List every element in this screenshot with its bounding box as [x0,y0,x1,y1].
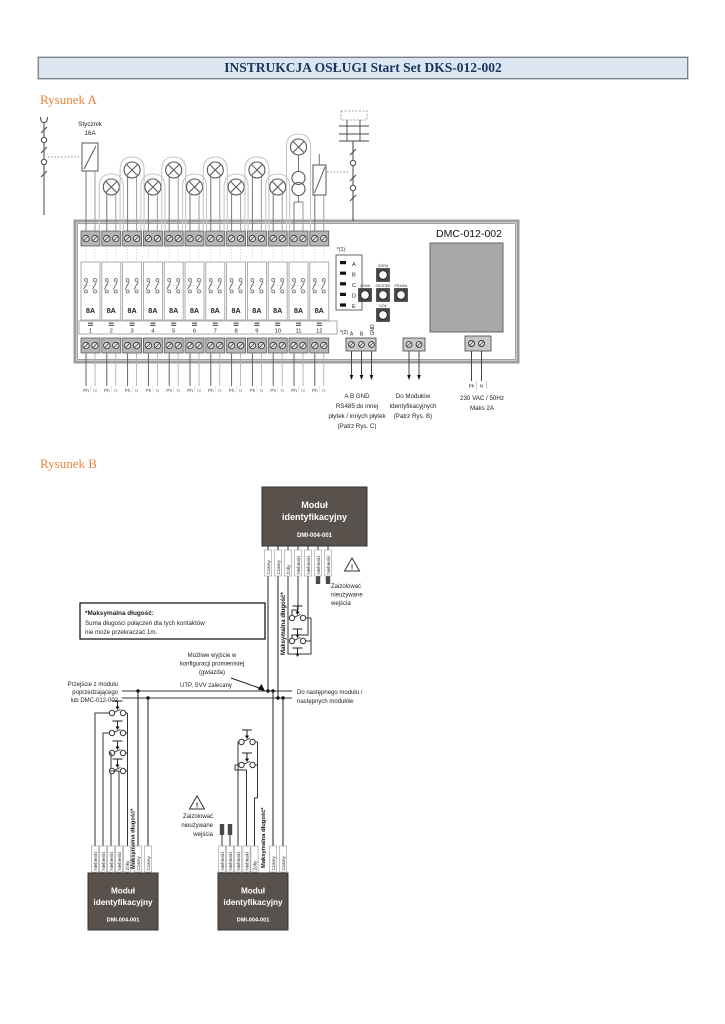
incoming-breaker-right [339,111,369,221]
svg-text:DÓŁ: DÓŁ [379,303,386,308]
svg-text:nie może przekraczać 1m.: nie może przekraczać 1m. [85,629,157,636]
svg-text:Niebieski: Niebieski [228,852,233,870]
warning-unused-top: !Zaizolowaćnieużywanewejścia [330,558,363,607]
svg-text:Ph: Ph [229,388,235,394]
svg-text:Niebieski: Niebieski [101,852,106,870]
svg-text:N: N [176,388,180,394]
svg-text:8A: 8A [190,306,199,315]
svg-text:Ph: Ph [312,388,318,394]
top-module-wiring: CzarnyCzarnyŻółtyNiebieskiNiebieskiNiebi… [264,546,331,698]
svg-text:5: 5 [172,328,175,334]
figure-b-caption: Rysunek B [40,456,97,472]
svg-text:Stycznik: Stycznik [78,121,103,128]
channel-number-strip: 123456789101112*(2) [79,321,348,336]
svg-text:Maksymalna długość*: Maksymalna długość* [261,807,267,868]
svg-text:E: E [352,304,356,310]
svg-text:poprzedzającego: poprzedzającego [72,690,118,696]
svg-text:Żółty: Żółty [285,564,291,575]
svg-text:wejścia: wejścia [330,601,351,607]
svg-text:DMI-004-001: DMI-004-001 [237,917,270,923]
middle-module-wiring: NiebieskiNiebieskiNiebieskiNiebieskiŻółt… [218,691,286,873]
contactor-16a: Stycznik16A [48,121,103,231]
svg-text:D: D [352,294,356,300]
svg-text:N: N [301,388,305,394]
incoming-breaker-left [41,117,48,215]
svg-text:Ph: Ph [166,388,172,394]
svg-text:Czarny: Czarny [281,855,286,870]
svg-text:2: 2 [110,328,113,334]
svg-text:Moduł: Moduł [301,500,328,510]
svg-text:Suma długości połączeń dla tyc: Suma długości połączeń dla tych kontaktó… [85,620,205,627]
svg-text:PRAWA: PRAWA [395,284,409,288]
svg-text:8A: 8A [273,306,282,315]
svg-text:Czarny: Czarny [276,559,281,574]
svg-text:Niebieski: Niebieski [93,852,98,870]
svg-text:*(1): *(1) [337,247,345,253]
svg-text:Identyfikacyjnych: Identyfikacyjnych [389,403,437,410]
svg-text:3: 3 [130,328,133,334]
svg-text:Czarny: Czarny [136,855,141,870]
svg-text:RS485 do innej: RS485 do innej [336,403,378,410]
figure-a-diagram: DMC-012-0028A8A8A8A8A8A8A8A8A8A8A8A12345… [35,110,565,450]
svg-text:Niebieski: Niebieski [326,556,331,574]
svg-text:N: N [260,388,264,394]
svg-text:N: N [156,388,160,394]
svg-text:wejścia: wejścia [192,832,213,838]
svg-text:Ph: Ph [104,388,110,394]
svg-text:10: 10 [274,328,280,334]
svg-text:GÓRA: GÓRA [378,263,389,268]
svg-text:ŚRODEK: ŚRODEK [375,283,391,288]
svg-text:8A: 8A [107,306,116,315]
svg-text:Ph: Ph [83,388,89,394]
svg-text:Maksymalna długość*: Maksymalna długość* [131,808,137,869]
svg-text:Ph: Ph [270,388,276,394]
nav-button-left: LEWA [359,284,372,302]
svg-text:nieużywane: nieużywane [331,593,363,599]
figure-b-diagram: CzarnyCzarnyŻółtyNiebieskiNiebieskiNiebi… [55,478,450,948]
svg-text:11: 11 [295,328,301,334]
svg-text:6: 6 [193,328,196,334]
svg-text:LEWA: LEWA [360,284,371,288]
device-label: DMC-012-002 [436,228,502,240]
svg-text:Ph: Ph [125,388,131,394]
svg-text:Ph: Ph [187,388,193,394]
svg-text:8A: 8A [86,306,95,315]
led-indicator-panel: ABCDE*(1) [336,247,362,310]
svg-text:C: C [352,283,356,289]
svg-text:identyfikacyjny: identyfikacyjny [93,898,153,907]
svg-text:Ph: Ph [145,388,151,394]
identification-module: ModułidentyfikacyjnyDMI-004-001 [88,873,158,930]
supply-circuit: Stycznik16A [41,111,370,231]
svg-text:N: N [480,384,484,390]
svg-text:DMI-004-001: DMI-004-001 [297,533,333,539]
svg-text:Niebieski: Niebieski [236,852,241,870]
svg-text:8A: 8A [231,306,240,315]
svg-text:Do następnego modułu /: Do następnego modułu / [297,690,363,696]
svg-text:następnych modułów: następnych modułów [297,699,354,705]
bus-lines: Przejście z modułupoprzedzającegolub DMC… [68,682,363,705]
svg-text:Niebieski: Niebieski [220,852,225,870]
svg-text:Moduł: Moduł [111,887,136,896]
identification-module: ModułidentyfikacyjnyDMI-004-001 [262,487,367,546]
svg-text:Moduł: Moduł [241,887,266,896]
svg-text:A: A [352,262,356,268]
svg-text:nieużywane: nieużywane [181,823,213,829]
figure-a-caption: Rysunek A [40,92,97,108]
svg-text:Czarny: Czarny [146,855,151,870]
svg-text:8A: 8A [169,306,178,315]
svg-text:1: 1 [89,328,92,334]
svg-text:Przejście z modułu: Przejście z modułu [68,682,118,688]
svg-text:*(2): *(2) [340,330,348,336]
svg-text:Maks 2A: Maks 2A [470,405,495,412]
svg-text:N: N [239,388,243,394]
warning-unused-mid: !Zaizolowaćnieużywanewejścia [181,796,213,838]
svg-text:12: 12 [316,328,322,334]
svg-text:Niebieski: Niebieski [316,556,321,574]
svg-text:Niebieski: Niebieski [109,852,114,870]
document-title: INSTRUKCJA OSŁUGI Start Set DKS-012-002 [224,60,502,75]
svg-text:UTP, SVV zalecany: UTP, SVV zalecany [180,683,232,689]
svg-text:Czarny: Czarny [266,559,271,574]
title-bar: INSTRUKCJA OSŁUGI Start Set DKS-012-002 [38,57,688,79]
svg-text:8A: 8A [148,306,157,315]
svg-text:Maksymalna długość*: Maksymalna długość* [281,592,287,655]
svg-text:Ph: Ph [208,388,214,394]
svg-text:B: B [352,272,356,278]
nav-button-center: ŚRODEK [375,283,391,302]
bottom-annotations: A B GNDRS485 do innejpłytek / innych pły… [328,381,504,430]
component-block [430,243,503,332]
svg-text:8A: 8A [294,306,303,315]
svg-text:(Patrz Rys. C): (Patrz Rys. C) [338,423,377,430]
svg-text:Ph: Ph [291,388,297,394]
svg-text:8A: 8A [211,306,220,315]
svg-text:lub DMC-012-002: lub DMC-012-002 [71,698,119,704]
left-module-wiring: NiebieskiNiebieskiNiebieskiNiebieskiŻółt… [91,691,151,873]
svg-text:9: 9 [255,328,258,334]
svg-text:(gwiazda): (gwiazda) [199,670,225,676]
svg-text:8A: 8A [127,306,136,315]
svg-text:Możliwe wyjście w: Możliwe wyjście w [188,653,237,659]
svg-text:Czarny: Czarny [271,855,276,870]
svg-text:(Patrz Rys. B): (Patrz Rys. B) [394,413,433,420]
manual-page: INSTRUKCJA OSŁUGI Start Set DKS-012-002 … [0,0,725,1024]
svg-text:identyfikacyjny: identyfikacyjny [223,898,283,907]
svg-text:Żółty: Żółty [252,860,258,871]
svg-text:Niebieski: Niebieski [245,852,250,870]
svg-text:N: N [280,388,284,394]
svg-text:A B GND: A B GND [344,393,370,400]
max-length-note: *Maksymalna długość:Suma długości połącz… [80,603,265,639]
svg-text:Niebieski: Niebieski [296,556,301,574]
svg-text:Ph: Ph [469,384,475,390]
svg-text:N: N [197,388,201,394]
svg-text:Zaizolować: Zaizolować [183,814,213,820]
svg-text:Ph: Ph [249,388,255,394]
svg-text:230 VAC / 50Hz: 230 VAC / 50Hz [460,395,504,402]
svg-text:N: N [93,388,97,394]
identification-module: ModułidentyfikacyjnyDMI-004-001 [218,873,288,930]
svg-text:N: N [322,388,326,394]
svg-text:*Maksymalna długość:: *Maksymalna długość: [85,610,154,617]
svg-text:7: 7 [214,328,217,334]
nav-button-up: GÓRA [377,263,390,282]
svg-text:GND: GND [370,324,376,336]
svg-text:identyfikacyjny: identyfikacyjny [282,512,347,522]
svg-text:!: ! [351,565,353,572]
svg-text:Niebieski: Niebieski [306,556,311,574]
svg-text:N: N [218,388,222,394]
svg-text:konfiguracji promienistej: konfiguracji promienistej [180,662,244,668]
svg-text:Do Modułów: Do Modułów [396,393,431,400]
svg-text:!: ! [196,803,198,810]
svg-text:16A: 16A [84,130,96,137]
nav-button-right: PRAWA [395,284,409,302]
svg-text:8A: 8A [252,306,261,315]
svg-text:Niebieski: Niebieski [117,852,122,870]
svg-text:płytek / innych płytek: płytek / innych płytek [328,413,386,420]
contactor-symbol [313,154,349,231]
svg-text:Zaizolować: Zaizolować [331,584,361,590]
svg-text:DMI-004-001: DMI-004-001 [107,917,140,923]
svg-text:8A: 8A [315,306,324,315]
svg-text:Żółty: Żółty [124,860,130,871]
svg-text:N: N [114,388,118,394]
svg-text:8: 8 [234,328,237,334]
svg-text:N: N [135,388,139,394]
